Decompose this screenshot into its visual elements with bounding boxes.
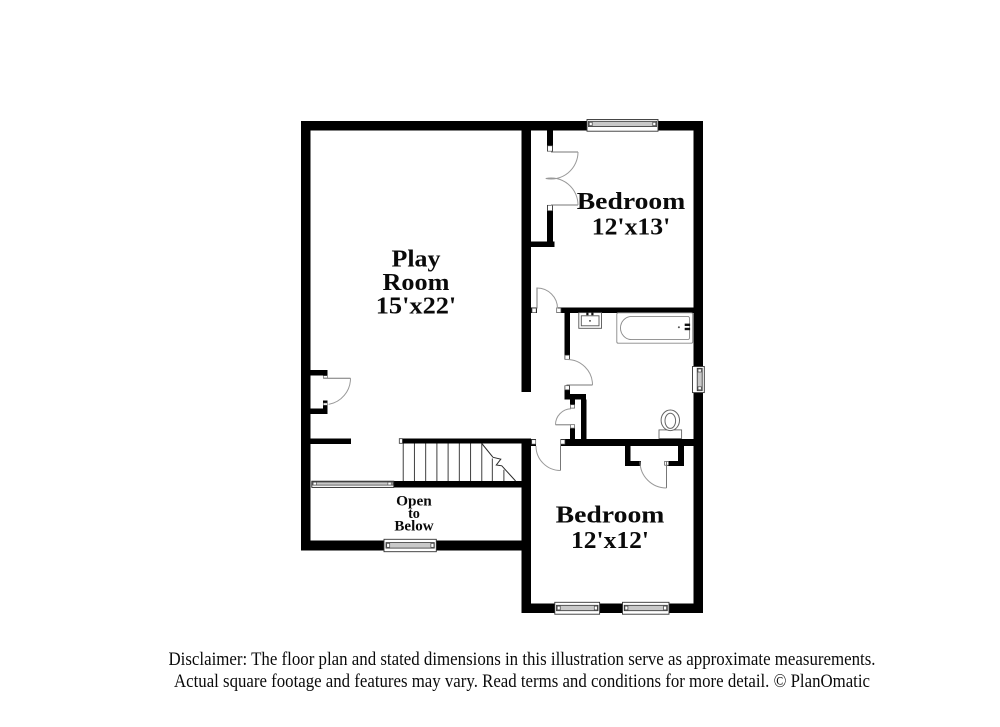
svg-text:Disclaimer: The floor plan and: Disclaimer: The floor plan and stated di… <box>169 649 876 670</box>
svg-text:12'x13': 12'x13' <box>592 215 671 241</box>
svg-text:Room: Room <box>383 270 450 296</box>
svg-text:Actual square footage and feat: Actual square footage and features may v… <box>174 671 870 692</box>
svg-text:Bedroom: Bedroom <box>577 189 686 215</box>
svg-text:15'x22': 15'x22' <box>376 294 457 320</box>
svg-text:Play: Play <box>392 247 441 273</box>
svg-text:Bedroom: Bedroom <box>556 503 665 529</box>
svg-text:12'x12': 12'x12' <box>571 528 649 554</box>
svg-text:Below: Below <box>394 519 434 535</box>
